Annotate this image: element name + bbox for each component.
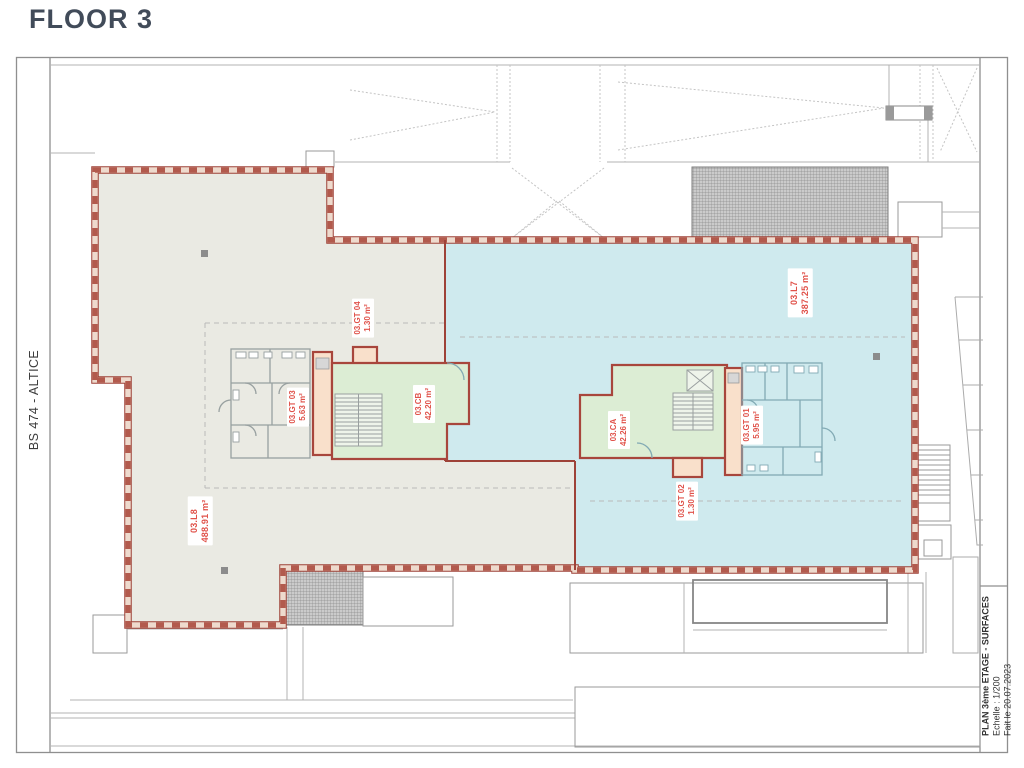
- room-id: 03.L8: [189, 500, 200, 543]
- title-block-date: Fait le 20.07.2023: [1003, 596, 1014, 736]
- room-label-03-cb: 03.CB 42.20 m²: [413, 385, 435, 423]
- room-area: 5.63 m²: [298, 390, 308, 423]
- floor-plan-canvas: FLOOR 3: [0, 0, 1024, 768]
- drawing-side-label: BS 474 - ALTICE: [27, 350, 41, 450]
- room-label-03-gt04: 03.GT 04 1.30 m²: [352, 298, 374, 337]
- room-id: 03.L7: [789, 272, 800, 315]
- roof-hatch-top: [692, 167, 888, 238]
- title-block-plan-name: PLAN 3ème ETAGE - SURFACES: [981, 596, 992, 736]
- room-id: 03.GT 03: [288, 390, 298, 423]
- room-gt01: [725, 368, 742, 475]
- room-id: 03.GT 04: [353, 301, 363, 334]
- room-label-03-gt03: 03.GT 03 5.63 m²: [287, 387, 309, 426]
- room-label-03-gt02: 03.GT 02 1.30 m²: [676, 481, 698, 520]
- room-label-03-l8: 03.L8 488.91 m²: [188, 497, 213, 546]
- room-area: 5.95 m²: [752, 408, 762, 441]
- room-id: 03.CA: [609, 414, 619, 446]
- room-area: 42.26 m²: [619, 414, 629, 446]
- room-area: 488.91 m²: [200, 500, 211, 543]
- title-block: PLAN 3ème ETAGE - SURFACES Echelle : 1/2…: [981, 596, 1014, 736]
- cb-stairs: [335, 394, 382, 446]
- room-label-03-gt01: 03.GT 01 5.95 m²: [741, 405, 763, 444]
- room-id: 03.GT 01: [742, 408, 752, 441]
- room-label-03-ca: 03.CA 42.26 m²: [608, 411, 630, 449]
- room-area: 1.30 m²: [687, 484, 697, 517]
- title-block-scale: Echelle : 1/200: [992, 596, 1003, 736]
- roof-hatch-bottom: [283, 568, 363, 625]
- side-ramp: [955, 297, 983, 545]
- room-id: 03.GT 02: [677, 484, 687, 517]
- room-area: 1.30 m²: [363, 301, 373, 334]
- room-area: 387.25 m²: [800, 272, 811, 315]
- room-label-03-l7: 03.L7 387.25 m²: [788, 269, 813, 318]
- room-gt02: [673, 458, 702, 477]
- plan-linework: [0, 0, 1024, 768]
- room-area: 42.20 m²: [424, 388, 434, 420]
- room-id: 03.CB: [414, 388, 424, 420]
